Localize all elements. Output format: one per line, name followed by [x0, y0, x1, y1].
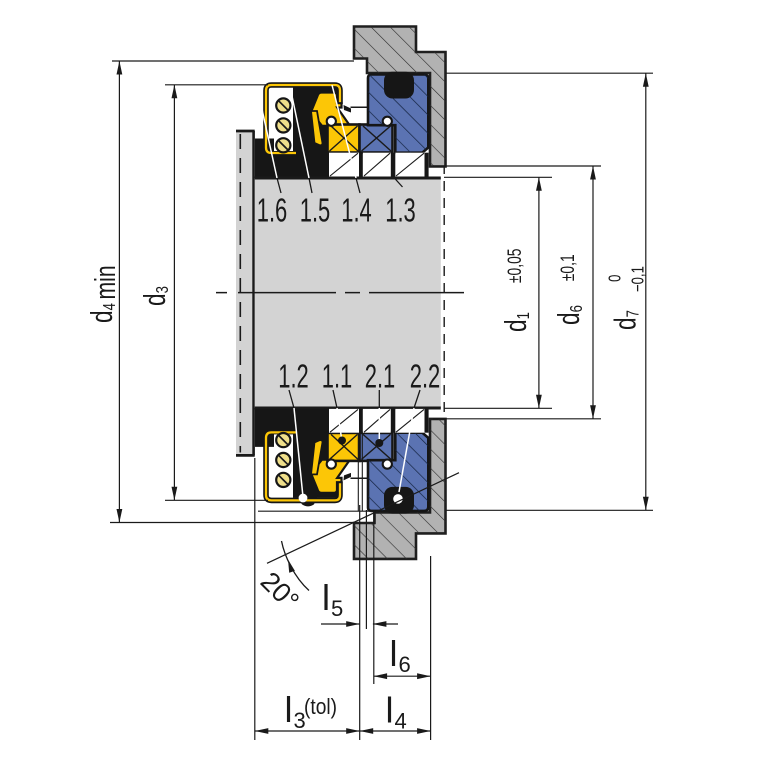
svg-text:2.1: 2.1	[365, 358, 396, 395]
svg-text:1.5: 1.5	[300, 192, 331, 229]
svg-text:1.4: 1.4	[341, 192, 372, 229]
svg-text:−0,1: −0,1	[629, 266, 648, 292]
svg-text:d4min: d4min	[83, 265, 121, 323]
svg-text:0: 0	[606, 274, 625, 282]
svg-text:±0,05: ±0,05	[504, 248, 526, 283]
svg-text:1.3: 1.3	[385, 192, 416, 229]
svg-text:2.2: 2.2	[410, 358, 441, 395]
svg-text:1.1: 1.1	[322, 358, 353, 395]
svg-text:1.2: 1.2	[278, 358, 309, 395]
svg-text:1.6: 1.6	[257, 192, 288, 229]
svg-text:(tol): (tol)	[304, 694, 337, 719]
svg-text:±0,1: ±0,1	[557, 254, 579, 281]
